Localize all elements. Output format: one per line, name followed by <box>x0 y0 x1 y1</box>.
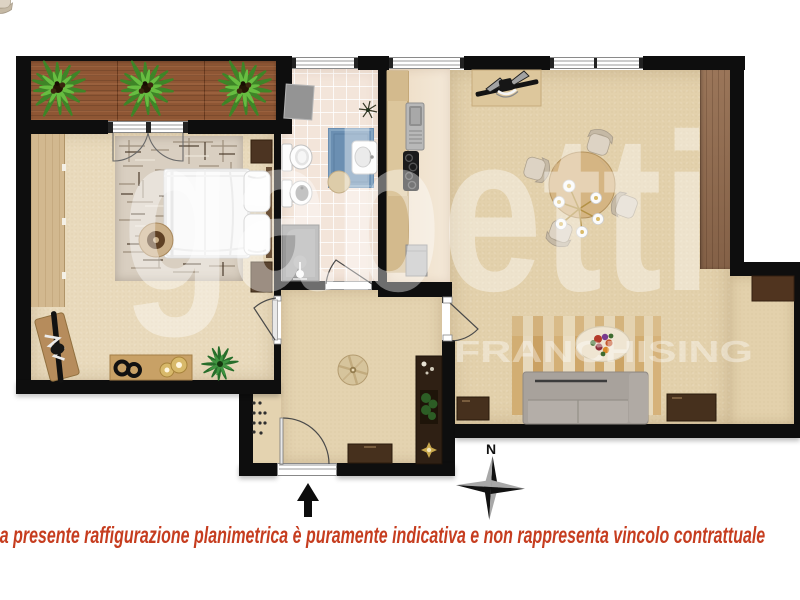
svg-text:gabetti: gabetti <box>122 88 712 338</box>
svg-text:FRANCHISING: FRANCHISING <box>454 334 753 369</box>
